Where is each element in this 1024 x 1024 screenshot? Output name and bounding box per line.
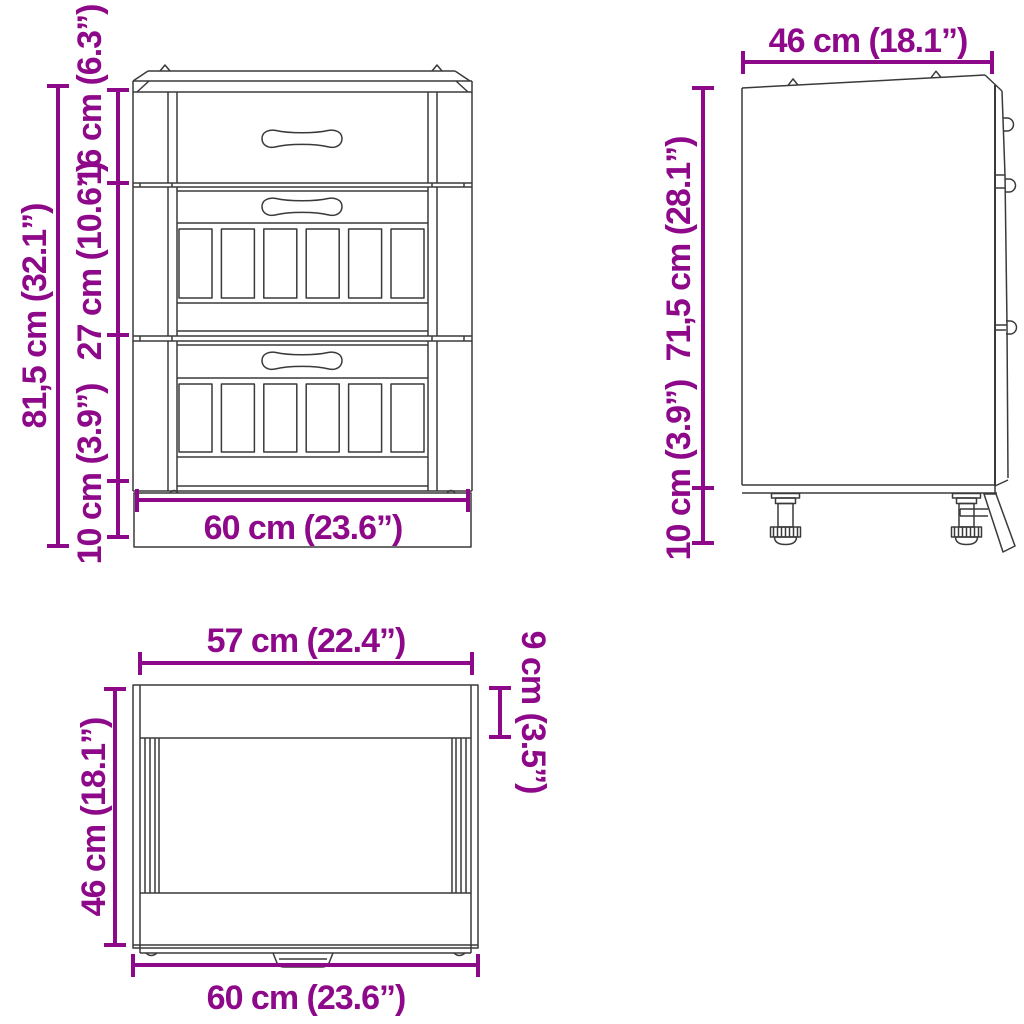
top-view-dimension-lines (104, 652, 511, 977)
front-plinth-height-label: 10 cm (3.9”) (71, 384, 109, 565)
front-view-top-drawer (262, 130, 342, 147)
side-view-feet (771, 494, 1016, 553)
drawer-handle-icon (262, 130, 342, 147)
adjustable-foot-icon (952, 494, 982, 545)
top-front-rail-depth-label: 9 cm (3.5”) (514, 631, 552, 794)
side-depth-label: 46 cm (18.1”) (769, 22, 968, 60)
top-carcass-width-label: 57 cm (22.4”) (207, 622, 406, 660)
front-top-drawer-height-label: 16 cm (6.3”) (71, 5, 109, 186)
top-view: 57 cm (22.4”) 46 cm (18.1”) 9 cm (3.5”) … (75, 622, 552, 1017)
front-view-dimension-lines (47, 86, 468, 546)
dimension-diagram-page: 81,5 cm (32.1”) 16 cm (6.3”) 27 cm (10.6… (0, 0, 1024, 1024)
front-middle-drawer-height-label: 27 cm (10.6”) (71, 162, 109, 361)
side-body-height-label: 71,5 cm (28.1”) (660, 136, 698, 361)
plinth-board-icon (984, 494, 1015, 552)
adjustable-foot-icon (771, 494, 801, 545)
front-view-cabinet-outline (133, 65, 472, 491)
side-view-dimension-lines (692, 51, 992, 543)
drawer-handle-icon (262, 352, 342, 369)
side-view: 46 cm (18.1”) 71,5 cm (28.1”) 10 cm (3.9… (660, 22, 1017, 560)
drawer-handle-icon (262, 198, 342, 215)
top-view-outline (133, 685, 478, 967)
front-view-middle-drawer (177, 191, 428, 331)
front-view: 81,5 cm (32.1”) 16 cm (6.3”) 27 cm (10.6… (16, 5, 472, 565)
side-leg-height-label: 10 cm (3.9”) (660, 380, 698, 561)
front-width-label: 60 cm (23.6”) (204, 509, 403, 547)
top-panel-tab-icon (160, 65, 442, 71)
top-total-width-label: 60 cm (23.6”) (207, 979, 406, 1017)
front-view-bottom-drawer (177, 345, 428, 486)
side-view-panel (742, 71, 1017, 493)
drawer-clip-icon (1003, 118, 1014, 131)
front-total-height-label: 81,5 cm (32.1”) (16, 203, 54, 428)
top-depth-label: 46 cm (18.1”) (75, 718, 113, 917)
dimension-diagram: 81,5 cm (32.1”) 16 cm (6.3”) 27 cm (10.6… (0, 0, 1024, 1024)
